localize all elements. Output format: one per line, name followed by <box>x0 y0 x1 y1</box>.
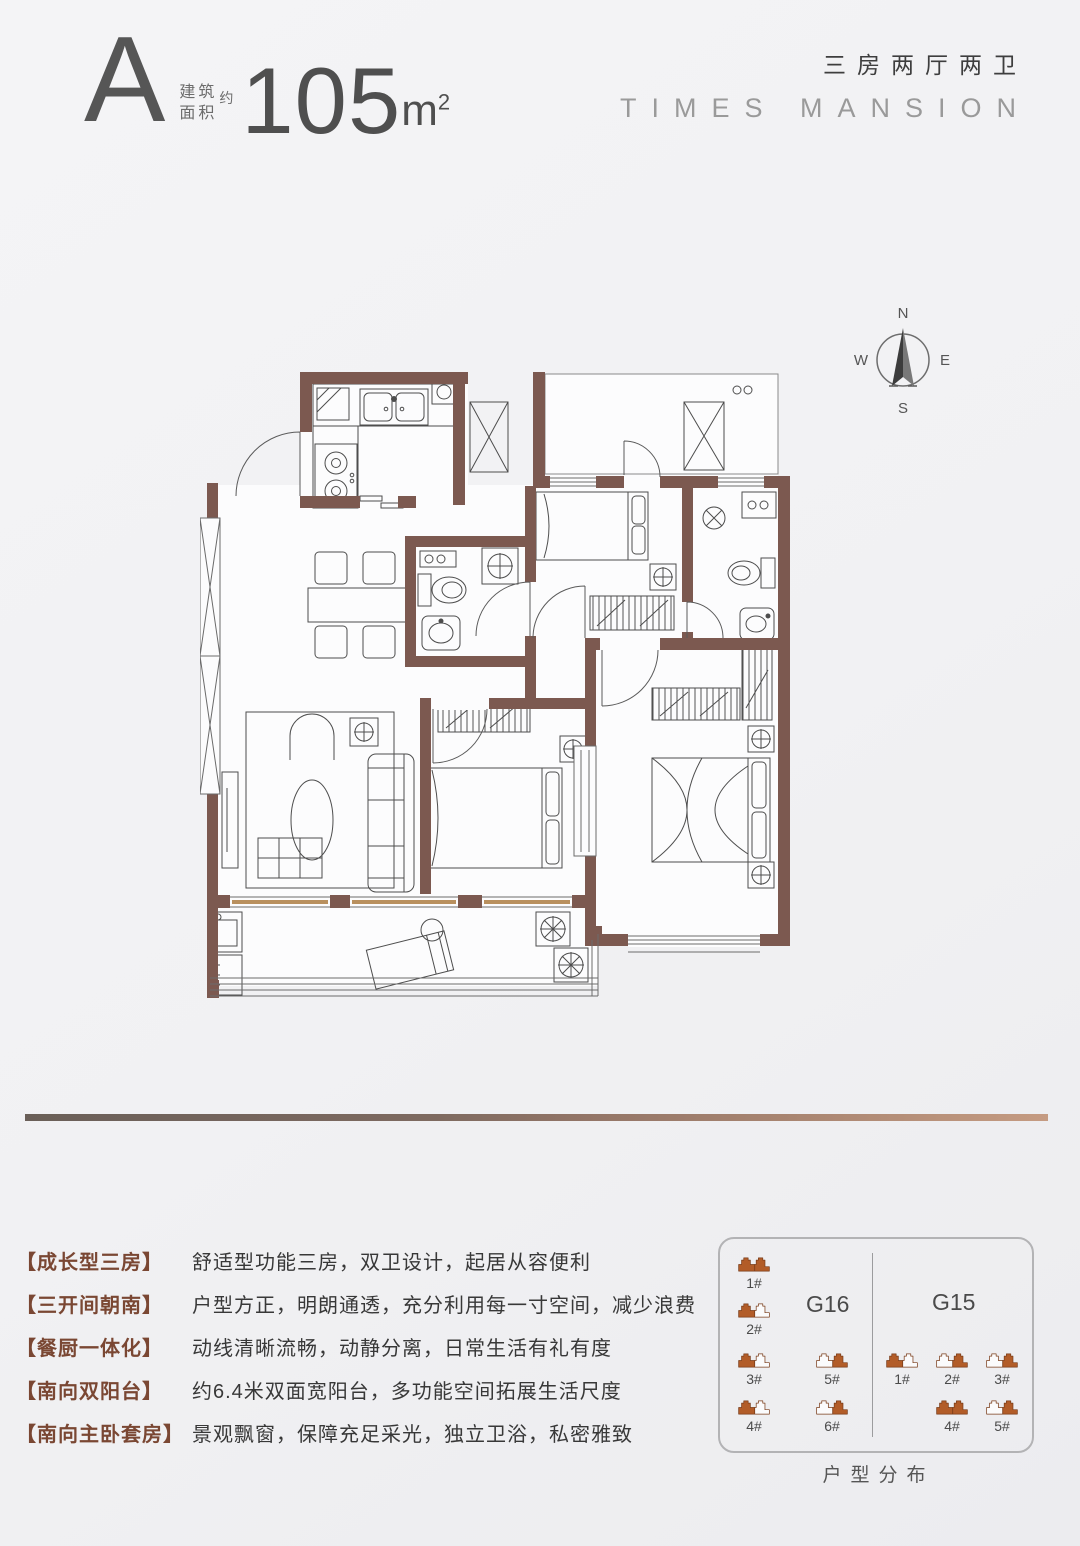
distribution-panel: G16 G15 1# 2# 3# 5# 4# 6# 1# 2# 3# 4# <box>718 1237 1034 1453</box>
room-backgrounds <box>200 372 778 986</box>
layout-type: 三房两厅两卫 <box>620 46 1027 80</box>
building-label: 5# <box>810 1371 854 1387</box>
unit-letter: A <box>84 22 165 138</box>
feature-row: 【南向双阳台】 约6.4米双面宽阳台，多功能空间拓展生活尺度 <box>16 1375 696 1404</box>
building-label: 3# <box>980 1371 1024 1387</box>
building-label: 5# <box>980 1418 1024 1434</box>
unit-header: A 建筑 面积 约 105 m2 <box>84 22 450 138</box>
building-icon: 2# <box>732 1301 776 1337</box>
building-label: 2# <box>732 1321 776 1337</box>
compass-north-label: N <box>898 305 909 322</box>
building-label: 4# <box>732 1418 776 1434</box>
brand-name: TIMES MANSION <box>620 93 1031 124</box>
compass-west-label: W <box>854 352 869 369</box>
compass-east-label: E <box>940 352 950 369</box>
building-icon: 5# <box>980 1398 1024 1434</box>
brochure-page: { "header": { "unit": "A", "area_label_1… <box>0 0 1080 1546</box>
building-icon: 1# <box>880 1351 924 1387</box>
building-icon: 3# <box>732 1351 776 1387</box>
block-g15-label: G15 <box>932 1289 975 1316</box>
building-label: 1# <box>880 1371 924 1387</box>
feature-label: 【成长型三房】 <box>16 1246 192 1275</box>
bay-window-icon <box>574 746 596 856</box>
feature-label: 【餐厨一体化】 <box>16 1332 192 1361</box>
building-icon: 6# <box>810 1398 854 1434</box>
project-header: 三房两厅两卫 TIMES MANSION <box>620 46 1016 124</box>
building-icon: 4# <box>930 1398 974 1434</box>
area-value: 105 <box>241 63 401 138</box>
section-divider <box>25 1114 1048 1121</box>
wardrobe-icon <box>590 596 674 630</box>
area-label: 建筑 面积 <box>179 82 217 124</box>
area-unit: m2 <box>401 86 450 136</box>
feature-text: 舒适型功能三房，双卫设计，起居从容便利 <box>192 1246 591 1275</box>
bay-window-icon <box>200 518 220 794</box>
compass-icon: N S W E <box>848 300 958 423</box>
feature-row: 【餐厨一体化】 动线清晰流畅，动静分离，日常生活有礼有度 <box>16 1332 696 1361</box>
feature-text: 户型方正，明朗通透，充分利用每一寸空间，减少浪费 <box>192 1289 696 1318</box>
elevator-shaft-icon <box>470 402 508 472</box>
building-icon: 5# <box>810 1351 854 1387</box>
feature-text: 动线清晰流畅，动静分离，日常生活有礼有度 <box>192 1332 612 1361</box>
feature-row: 【三开间朝南】 户型方正，明朗通透，充分利用每一寸空间，减少浪费 <box>16 1289 696 1318</box>
building-icon: 3# <box>980 1351 1024 1387</box>
building-icon: 4# <box>732 1398 776 1434</box>
floor-plan <box>200 368 800 1023</box>
building-label: 3# <box>732 1371 776 1387</box>
building-label: 6# <box>810 1418 854 1434</box>
feature-list: 【成长型三房】 舒适型功能三房，双卫设计，起居从容便利 【三开间朝南】 户型方正… <box>16 1246 696 1461</box>
building-label: 1# <box>732 1275 776 1291</box>
approx-label: 约 <box>219 88 233 108</box>
feature-label: 【南向主卧套房】 <box>16 1418 192 1447</box>
block-g16-label: G16 <box>806 1291 849 1318</box>
feature-row: 【南向主卧套房】 景观飘窗，保障充足采光，独立卫浴，私密雅致 <box>16 1418 696 1447</box>
feature-label: 【三开间朝南】 <box>16 1289 192 1318</box>
distribution-caption: 户型分布 <box>718 1460 1030 1487</box>
compass-south-label: S <box>898 400 908 417</box>
building-icon: 2# <box>930 1351 974 1387</box>
feature-text: 约6.4米双面宽阳台，多功能空间拓展生活尺度 <box>192 1375 622 1404</box>
building-label: 2# <box>930 1371 974 1387</box>
feature-label: 【南向双阳台】 <box>16 1375 192 1404</box>
building-icon: 1# <box>732 1255 776 1291</box>
building-label: 4# <box>930 1418 974 1434</box>
feature-text: 景观飘窗，保障充足采光，独立卫浴，私密雅致 <box>192 1418 633 1447</box>
panel-divider <box>872 1253 873 1437</box>
feature-row: 【成长型三房】 舒适型功能三房，双卫设计，起居从容便利 <box>16 1246 696 1275</box>
